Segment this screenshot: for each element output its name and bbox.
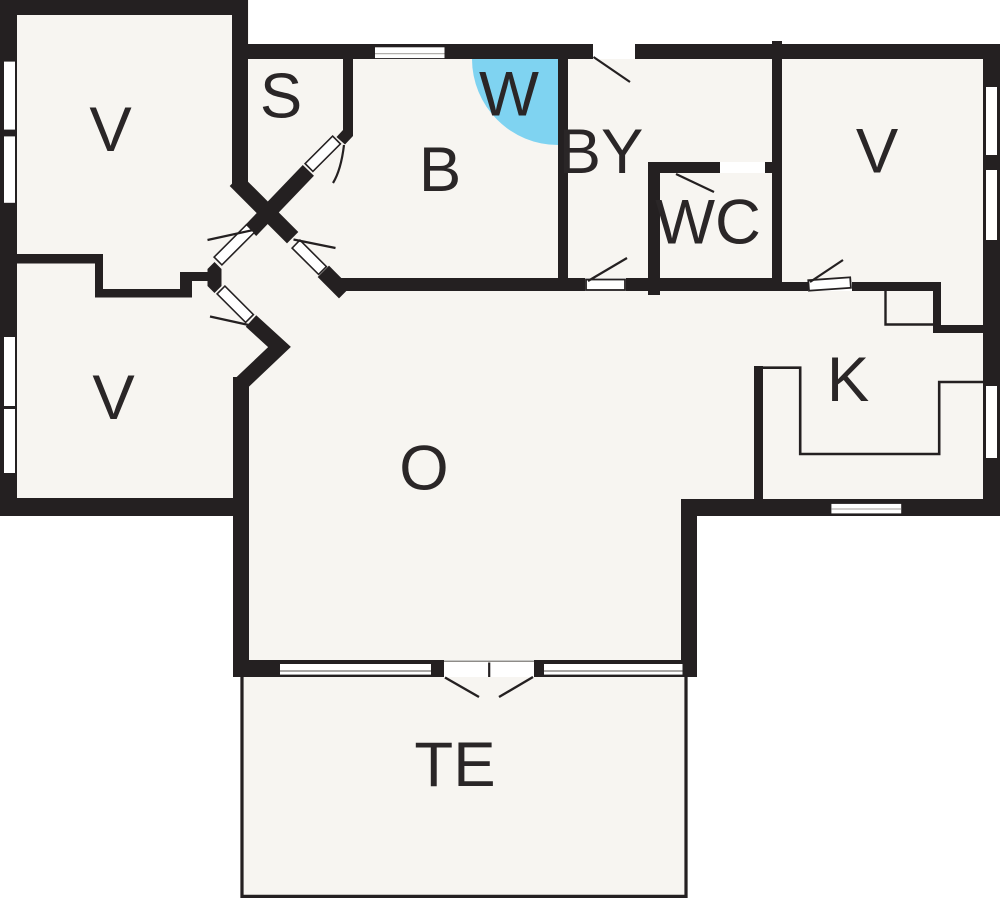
svg-text:W: W — [479, 60, 539, 130]
svg-text:K: K — [827, 345, 869, 415]
svg-text:TE: TE — [414, 730, 495, 800]
svg-text:V: V — [89, 95, 132, 165]
svg-text:V: V — [856, 117, 899, 187]
svg-text:V: V — [92, 363, 135, 433]
svg-text:BY: BY — [559, 117, 644, 187]
svg-text:WC: WC — [655, 188, 761, 258]
svg-text:S: S — [260, 62, 302, 132]
svg-text:B: B — [419, 135, 461, 205]
svg-text:O: O — [399, 434, 448, 504]
